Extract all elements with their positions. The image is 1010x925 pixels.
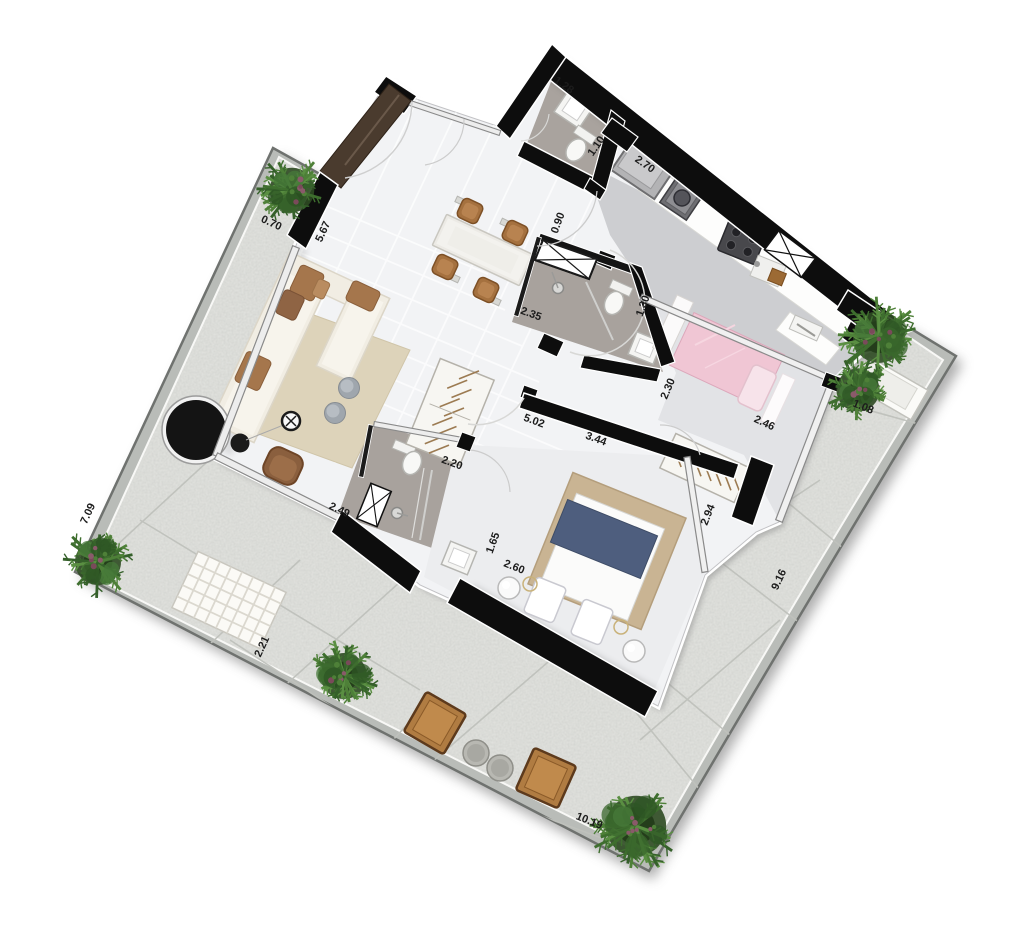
svg-text:7.09: 7.09 bbox=[78, 501, 98, 525]
